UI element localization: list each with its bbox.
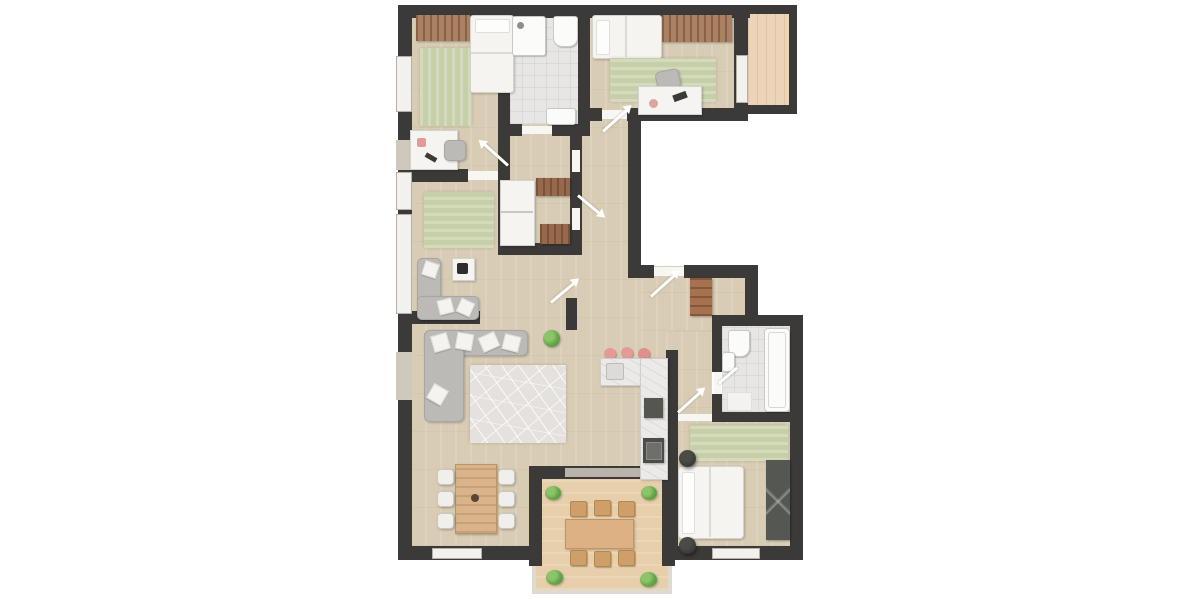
sill-terrace-door <box>565 468 649 477</box>
terrace-plant <box>641 486 657 500</box>
bathtub <box>764 328 790 412</box>
bed-pillow <box>475 19 510 33</box>
door-sill-bath1 <box>522 126 552 134</box>
terrace-chair <box>594 551 611 567</box>
dining-table <box>455 464 497 534</box>
bed-pillow <box>682 472 695 534</box>
dining-chair <box>437 513 454 529</box>
terrace-chair <box>618 501 635 517</box>
wall-bath1-right <box>578 12 590 134</box>
cooktop <box>644 398 663 418</box>
coffee-table-lounge <box>452 258 475 281</box>
shower <box>512 16 546 56</box>
bed-fold-line <box>709 467 711 537</box>
closet-shelf-top <box>536 178 570 196</box>
appliance-divider <box>501 211 533 213</box>
entry-cabinet <box>690 278 712 316</box>
terrace-table <box>565 519 634 549</box>
kitchen-sink <box>606 363 624 380</box>
terrace-plant <box>546 570 563 585</box>
rug-lounge <box>424 192 494 248</box>
sofa-pillow <box>455 332 475 352</box>
wall-bath2-bottom <box>712 412 803 422</box>
rug-bedroom1 <box>420 48 472 126</box>
wall-bath2-left-upper <box>712 326 722 372</box>
sink-bath1 <box>546 108 576 125</box>
window-bedroom4 <box>712 548 760 559</box>
toilet-bath1 <box>553 16 578 47</box>
wardrobe-dark-bedroom4 <box>766 460 790 540</box>
dining-chair <box>498 469 515 485</box>
terrace-chair <box>618 550 635 566</box>
dark-accessory <box>425 152 438 162</box>
rug-living <box>470 365 566 443</box>
chair-bedroom1 <box>444 140 466 161</box>
tray <box>457 263 468 274</box>
dining-chair <box>498 491 515 507</box>
pink-accessory <box>417 138 426 147</box>
door-sill-closet-top <box>572 150 580 172</box>
wall-terrace-right <box>662 466 675 566</box>
dining-chair <box>437 469 454 485</box>
window-bottom-left <box>432 548 482 559</box>
bath-mat <box>727 392 752 411</box>
planter-dark <box>679 537 696 554</box>
oven-column <box>643 438 664 463</box>
washer-dryer-stack <box>500 180 535 246</box>
door-sill-closet-bottom <box>572 208 580 230</box>
terrace-chair <box>594 500 611 516</box>
rug-bedroom4 <box>690 425 788 461</box>
wardrobe-bedroom1 <box>416 15 470 41</box>
bed-bedroom4 <box>678 466 744 539</box>
wall-balcony-right <box>789 5 797 114</box>
closet-shelf-bottom <box>540 224 570 244</box>
table-decor <box>471 494 479 502</box>
laptop <box>672 91 688 102</box>
window-balcony-opening <box>736 55 748 103</box>
wall-terrace-left <box>529 466 542 566</box>
wall-hall-living-stub <box>566 298 577 330</box>
floor-plan-canvas <box>0 0 1200 600</box>
wall-entry-top-right <box>684 265 758 278</box>
bed-bedroom3 <box>592 15 662 59</box>
dining-chair <box>498 513 515 529</box>
wall-entry-top-left <box>628 265 654 278</box>
desk-bedroom3 <box>638 86 702 115</box>
bathtub-inner <box>768 332 786 408</box>
door-sill-bedroom1 <box>468 171 498 180</box>
window-left-3 <box>396 214 412 314</box>
pink-accessory <box>649 99 658 108</box>
plant-living <box>543 330 560 347</box>
wall-balcony-bottom <box>746 105 797 114</box>
wall-right-outer <box>790 315 803 560</box>
wardrobe-bedroom3 <box>662 15 732 42</box>
bed-bedroom1 <box>470 15 514 93</box>
terrace-chair <box>570 501 587 517</box>
sill-left-2 <box>396 352 412 400</box>
terrace-chair <box>570 550 587 566</box>
wall-hall-right <box>628 118 641 271</box>
wall-bedroom3-bottom-left <box>590 108 602 121</box>
bed-pillow <box>596 20 610 55</box>
window-left-2 <box>396 172 412 210</box>
floor-balcony <box>748 13 789 105</box>
window-left-1 <box>396 56 412 112</box>
door-sill-bedroom4 <box>678 414 712 421</box>
bed-fold-line <box>625 16 627 57</box>
terrace-plant <box>545 486 561 500</box>
oven-door <box>646 442 662 460</box>
dining-chair <box>437 491 454 507</box>
terrace-plant <box>640 572 657 587</box>
shower-drain <box>517 22 524 29</box>
planter-dark <box>679 450 696 467</box>
bed-fold-line <box>471 52 512 54</box>
